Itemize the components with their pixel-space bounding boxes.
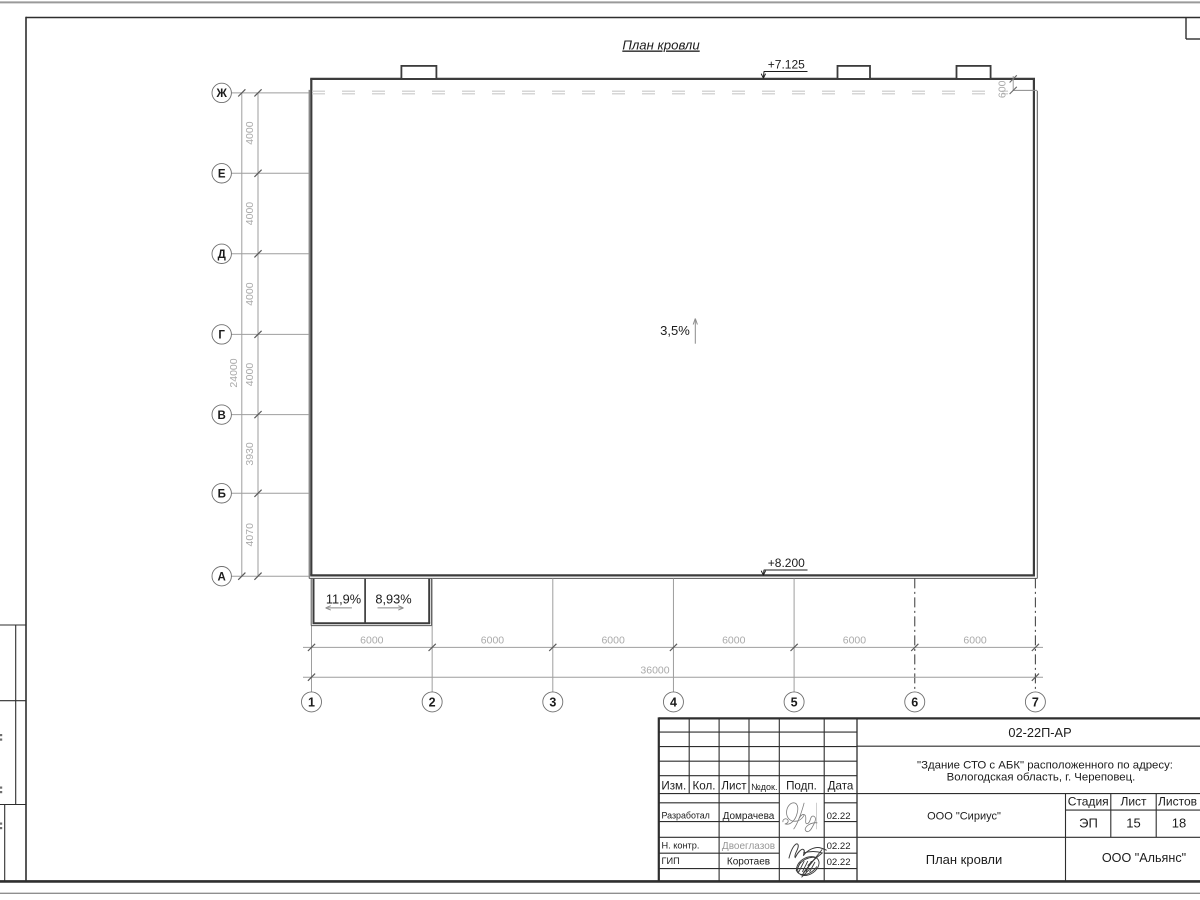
svg-text:15: 15	[1126, 816, 1140, 831]
svg-text:Стадия: Стадия	[1068, 795, 1109, 809]
svg-text:600: 600	[997, 80, 1009, 98]
svg-text:6: 6	[911, 696, 918, 710]
svg-text:3: 3	[549, 696, 556, 710]
svg-text:02-22П-АР: 02-22П-АР	[1008, 725, 1071, 740]
svg-text:План кровли: План кровли	[622, 38, 700, 53]
svg-text:Двоеглазов: Двоеглазов	[722, 841, 775, 852]
svg-text:Н. контр.: Н. контр.	[662, 841, 700, 851]
svg-text:7: 7	[1032, 696, 1039, 710]
svg-text:Коротаев: Коротаев	[727, 856, 770, 867]
svg-text:02.22: 02.22	[827, 857, 851, 868]
svg-text:ЭП: ЭП	[1079, 816, 1098, 831]
svg-text:"Здание СТО с АБК" расположенн: "Здание СТО с АБК" расположенного по адр…	[917, 759, 1173, 771]
svg-text:А: А	[218, 571, 226, 583]
svg-text:ООО "Альянс": ООО "Альянс"	[1102, 851, 1186, 865]
svg-text:Ж: Ж	[215, 88, 227, 100]
svg-text:Разработал: Разработал	[662, 811, 710, 821]
svg-text:18: 18	[1172, 816, 1186, 831]
svg-text:Лист: Лист	[1120, 795, 1147, 809]
svg-text:6000: 6000	[481, 634, 505, 646]
svg-text:Листов: Листов	[1158, 795, 1197, 809]
svg-text:Е: Е	[218, 169, 226, 181]
svg-text:6000: 6000	[601, 634, 625, 646]
svg-text:3930: 3930	[244, 442, 256, 466]
svg-text:Кол.: Кол.	[693, 779, 716, 792]
svg-text:ГИП: ГИП	[662, 856, 680, 866]
svg-text:02.22: 02.22	[827, 811, 851, 822]
svg-text:4000: 4000	[244, 121, 256, 145]
svg-text:02.22: 02.22	[827, 841, 851, 852]
svg-text:6000: 6000	[722, 634, 746, 646]
svg-text:№док.: №док.	[751, 782, 777, 792]
svg-text:Домрачева: Домрачева	[723, 811, 775, 822]
svg-text:Б: Б	[218, 489, 226, 501]
svg-text:11,9%: 11,9%	[326, 591, 361, 606]
svg-text:Г: Г	[218, 330, 225, 342]
svg-text:8,93%: 8,93%	[375, 591, 411, 606]
svg-text:3,5%: 3,5%	[660, 323, 690, 338]
svg-text:ООО "Сириус": ООО "Сириус"	[927, 811, 1001, 823]
svg-text:4000: 4000	[244, 363, 256, 387]
svg-text:Вологодская область, г. Черепо: Вологодская область, г. Череповец.	[947, 772, 1136, 784]
svg-text:Подп.: Подп.	[786, 779, 817, 792]
svg-text:5: 5	[791, 696, 798, 710]
svg-text:+7.125: +7.125	[768, 58, 805, 72]
svg-text:24000: 24000	[228, 358, 240, 387]
svg-text:4070: 4070	[244, 523, 256, 547]
svg-text:1: 1	[308, 696, 315, 710]
svg-text:36000: 36000	[640, 665, 669, 677]
svg-text:Дата: Дата	[828, 779, 854, 792]
svg-text:4000: 4000	[244, 202, 256, 226]
svg-text:В: В	[218, 410, 226, 422]
svg-text:План кровли: План кровли	[926, 852, 1003, 867]
svg-text:+8.200: +8.200	[768, 556, 805, 570]
svg-text:6000: 6000	[963, 634, 987, 646]
svg-text:2: 2	[429, 696, 436, 710]
svg-text:Лист: Лист	[721, 779, 747, 792]
svg-text:4: 4	[670, 696, 677, 710]
svg-text:6000: 6000	[843, 634, 867, 646]
svg-text:6000: 6000	[360, 634, 384, 646]
svg-text:Д: Д	[218, 249, 226, 261]
svg-text:4000: 4000	[244, 282, 256, 306]
svg-text:Изм.: Изм.	[661, 779, 686, 792]
